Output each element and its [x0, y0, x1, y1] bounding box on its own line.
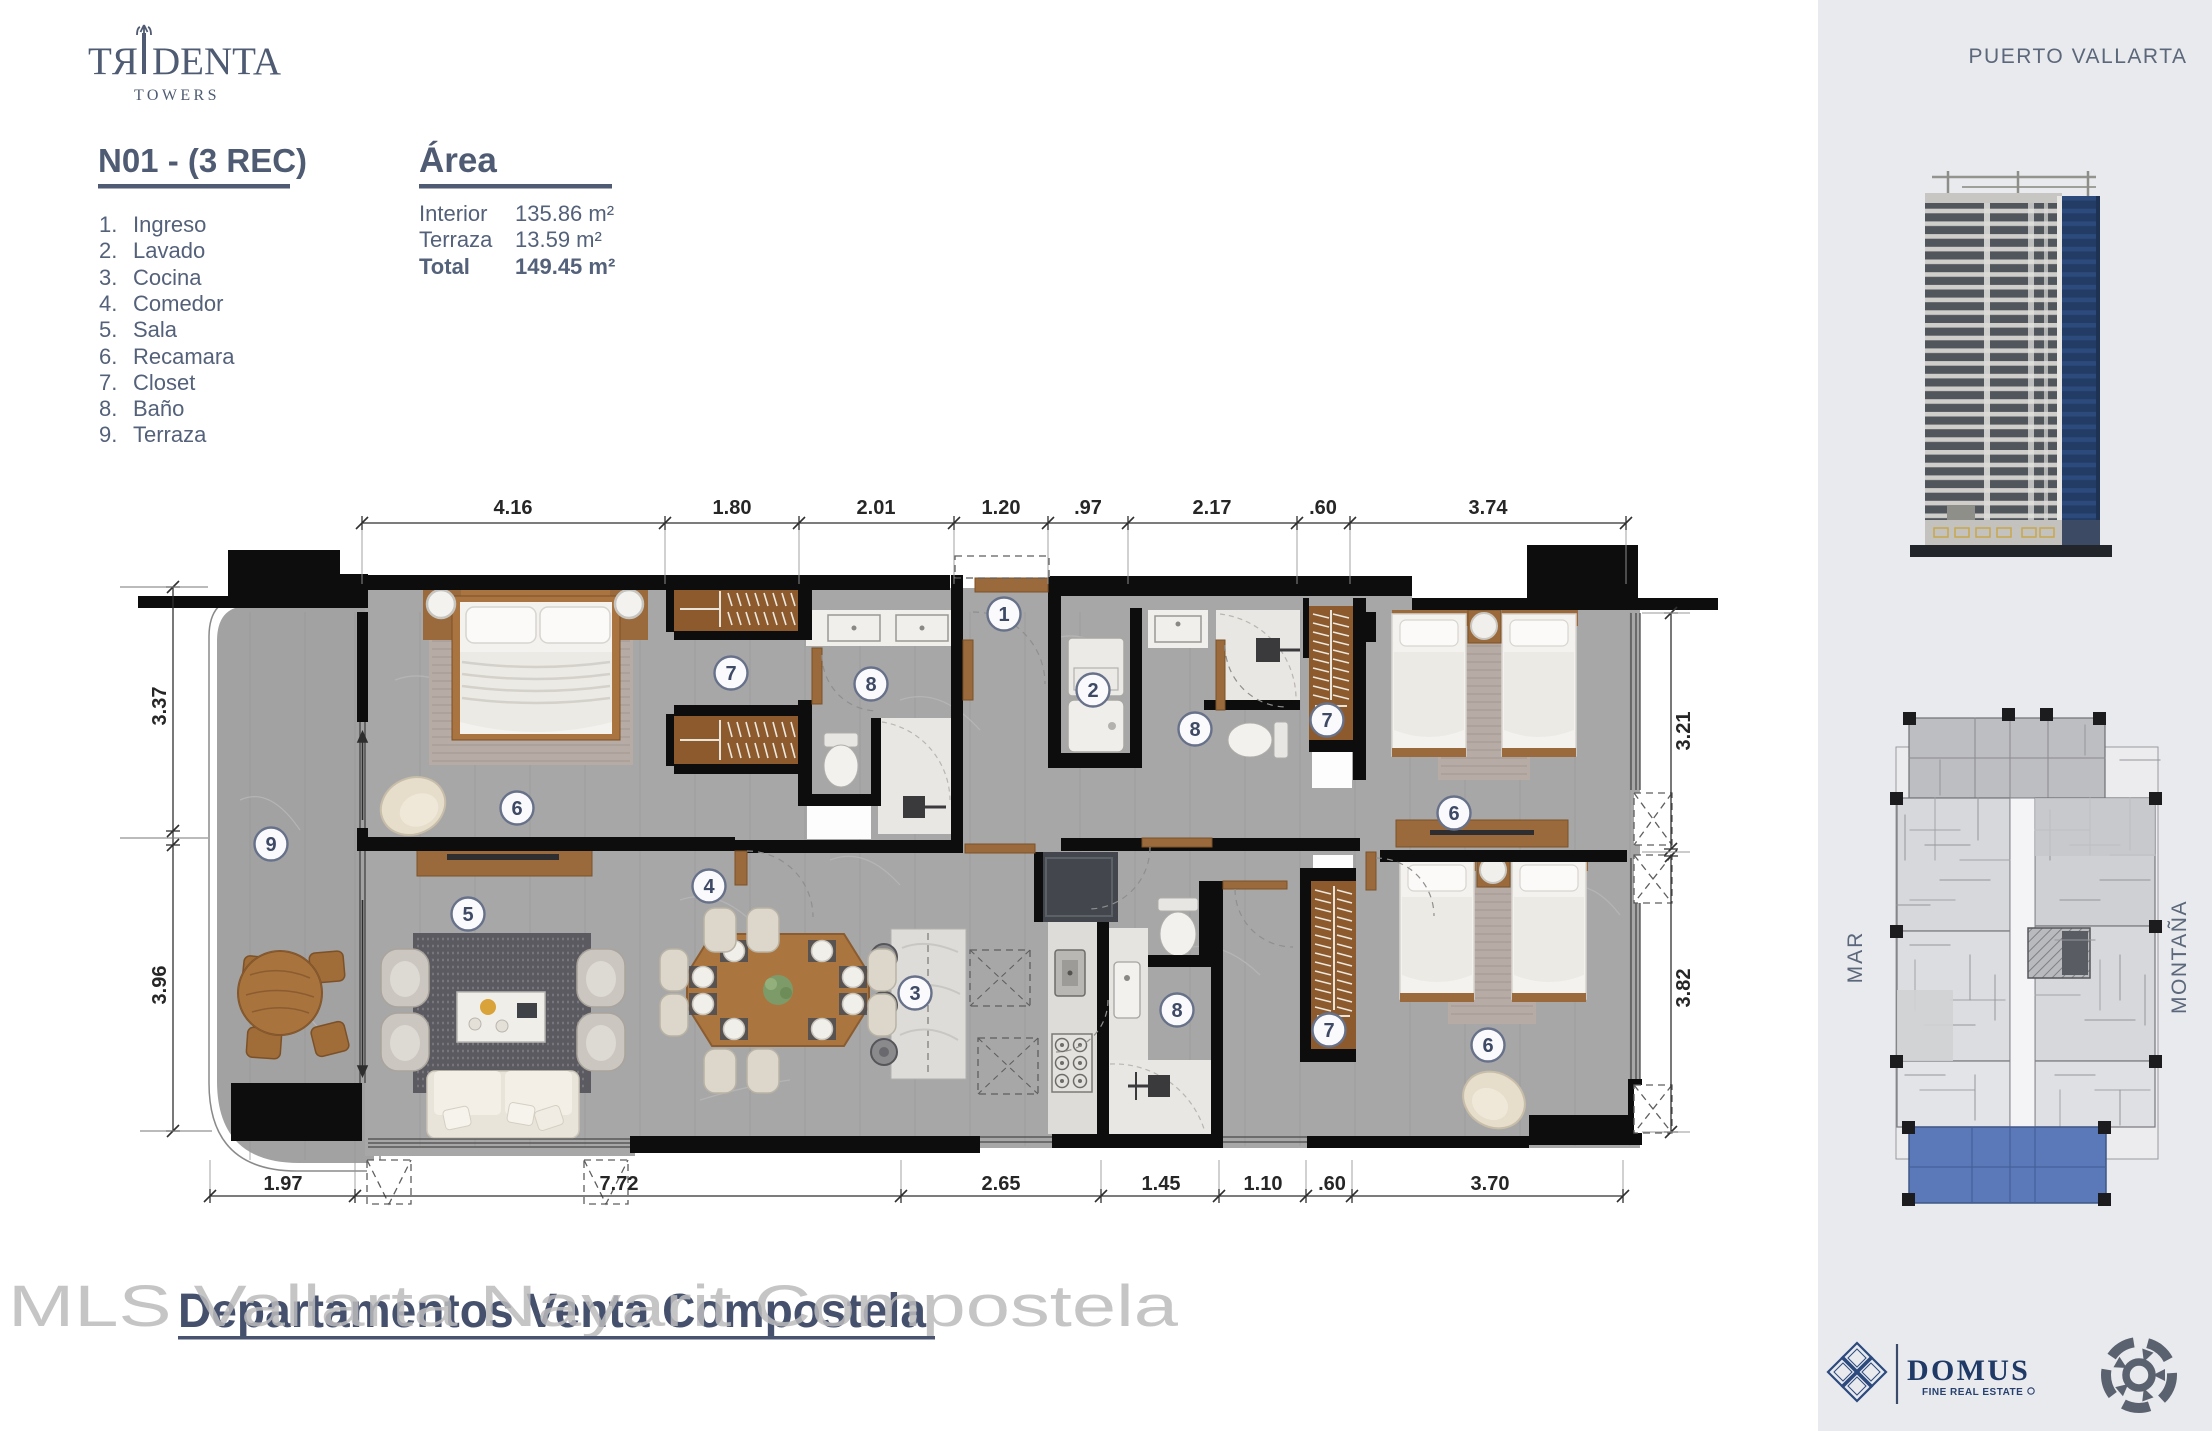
svg-text:5.: 5. [99, 317, 117, 342]
svg-text:135.86 m²: 135.86 m² [515, 201, 614, 226]
svg-text:4: 4 [703, 876, 715, 898]
svg-text:1.: 1. [99, 212, 117, 237]
svg-text:Terraza: Terraza [133, 422, 207, 447]
svg-text:Lavado: Lavado [133, 238, 205, 263]
svg-text:Comedor: Comedor [133, 291, 223, 316]
svg-text:.60: .60 [1318, 1173, 1346, 1195]
svg-text:FINE REAL ESTATE: FINE REAL ESTATE [1922, 1387, 2023, 1398]
svg-text:1.80: 1.80 [713, 497, 752, 519]
svg-text:13.59 m²: 13.59 m² [515, 227, 602, 252]
svg-text:3: 3 [909, 983, 920, 1005]
svg-text:Sala: Sala [133, 317, 178, 342]
svg-text:3.82: 3.82 [1673, 969, 1695, 1008]
svg-text:MONTAÑA: MONTAÑA [2167, 900, 2191, 1014]
svg-text:7.72: 7.72 [600, 1173, 639, 1195]
svg-text:.97: .97 [1074, 497, 1102, 519]
svg-text:5: 5 [462, 904, 473, 926]
svg-text:8: 8 [1171, 1000, 1182, 1022]
svg-text:1.20: 1.20 [982, 497, 1021, 519]
svg-text:MAR: MAR [1844, 931, 1867, 984]
svg-text:.60: .60 [1309, 497, 1337, 519]
svg-text:Recamara: Recamara [133, 344, 235, 369]
svg-text:1.10: 1.10 [1244, 1173, 1283, 1195]
svg-text:Baño: Baño [133, 396, 184, 421]
svg-text:TЯ: TЯ [88, 40, 138, 83]
svg-text:Interior: Interior [419, 201, 487, 226]
svg-text:6: 6 [1448, 803, 1459, 825]
svg-text:7: 7 [1323, 1020, 1334, 1042]
svg-text:MLS Vallarta Nayarit Compostel: MLS Vallarta Nayarit Compostela [8, 1274, 1179, 1339]
svg-text:149.45 m²: 149.45 m² [515, 254, 615, 279]
svg-text:8.: 8. [99, 396, 117, 421]
svg-text:Closet: Closet [133, 370, 195, 395]
svg-text:3.: 3. [99, 265, 117, 290]
svg-text:2.: 2. [99, 238, 117, 263]
svg-text:Ingreso: Ingreso [133, 212, 206, 237]
svg-text:2.17: 2.17 [1193, 497, 1232, 519]
svg-text:Área: Área [419, 140, 497, 180]
svg-text:3.37: 3.37 [149, 687, 171, 726]
svg-text:8: 8 [1189, 719, 1200, 741]
svg-text:1: 1 [998, 604, 1009, 626]
svg-text:6.: 6. [99, 344, 117, 369]
svg-text:6: 6 [1482, 1035, 1493, 1057]
svg-text:9.: 9. [99, 422, 117, 447]
svg-text:N01 - (3 REC): N01 - (3 REC) [98, 142, 307, 179]
svg-text:Total: Total [419, 254, 470, 279]
svg-text:4.: 4. [99, 291, 117, 316]
svg-text:6: 6 [511, 798, 522, 820]
svg-text:9: 9 [265, 834, 276, 856]
svg-text:2.01: 2.01 [857, 497, 896, 519]
svg-text:PUERTO VALLARTA: PUERTO VALLARTA [1969, 45, 2188, 68]
svg-text:3.96: 3.96 [149, 966, 171, 1005]
svg-text:DENTA: DENTA [152, 40, 281, 83]
svg-text:7.: 7. [99, 370, 117, 395]
svg-text:Cocina: Cocina [133, 265, 202, 290]
svg-text:3.70: 3.70 [1471, 1173, 1510, 1195]
svg-text:1.97: 1.97 [264, 1173, 303, 1195]
svg-text:3.21: 3.21 [1673, 712, 1695, 751]
svg-text:8: 8 [865, 674, 876, 696]
svg-text:3.74: 3.74 [1469, 497, 1509, 519]
svg-text:4.16: 4.16 [494, 497, 533, 519]
svg-text:1.45: 1.45 [1142, 1173, 1181, 1195]
svg-text:7: 7 [1321, 710, 1332, 732]
svg-text:2: 2 [1087, 680, 1098, 702]
svg-text:2.65: 2.65 [982, 1173, 1021, 1195]
svg-text:Terraza: Terraza [419, 227, 493, 252]
svg-text:DOMUS: DOMUS [1907, 1354, 2030, 1387]
svg-text:7: 7 [725, 663, 736, 685]
svg-text:TOWERS: TOWERS [134, 87, 220, 104]
